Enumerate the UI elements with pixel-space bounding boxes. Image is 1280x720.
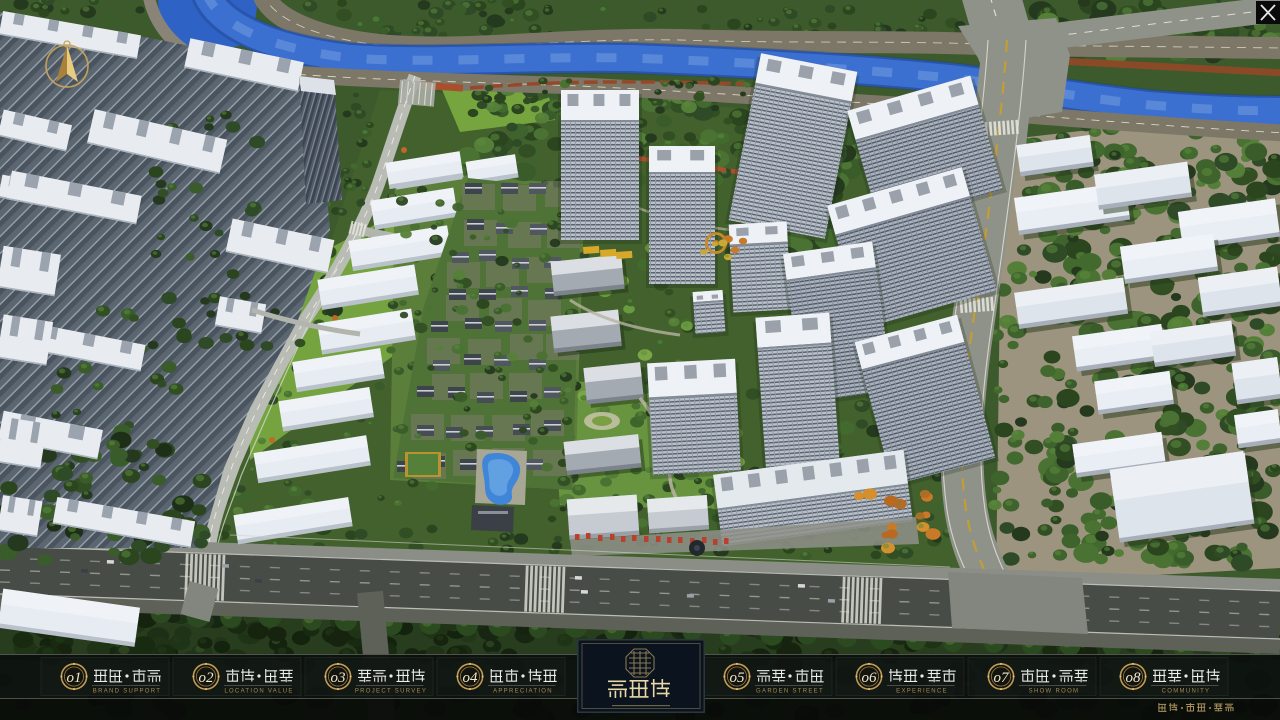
svg-text:LOCATION VALUE: LOCATION VALUE	[224, 689, 293, 695]
svg-text:APPRECIATION: APPRECIATION	[493, 689, 553, 695]
svg-text:o5: o5	[730, 670, 746, 686]
svg-text:o2: o2	[199, 670, 215, 686]
svg-text:EXPERIENCE: EXPERIENCE	[896, 689, 948, 695]
svg-text:SHOW ROOM: SHOW ROOM	[1029, 689, 1080, 695]
svg-text:o6: o6	[862, 670, 878, 686]
svg-text:o3: o3	[331, 670, 346, 686]
svg-text:o7: o7	[994, 670, 1011, 686]
svg-text:PROJECT SURVEY: PROJECT SURVEY	[355, 689, 427, 695]
svg-text:o8: o8	[1126, 670, 1142, 686]
svg-text:BRAND SUPPORT: BRAND SUPPORT	[93, 689, 161, 695]
svg-text:GARDEN STREET: GARDEN STREET	[756, 689, 824, 695]
svg-text:o1: o1	[67, 670, 82, 686]
svg-text:COMMUNITY: COMMUNITY	[1162, 689, 1211, 695]
svg-text:o4: o4	[463, 670, 479, 686]
